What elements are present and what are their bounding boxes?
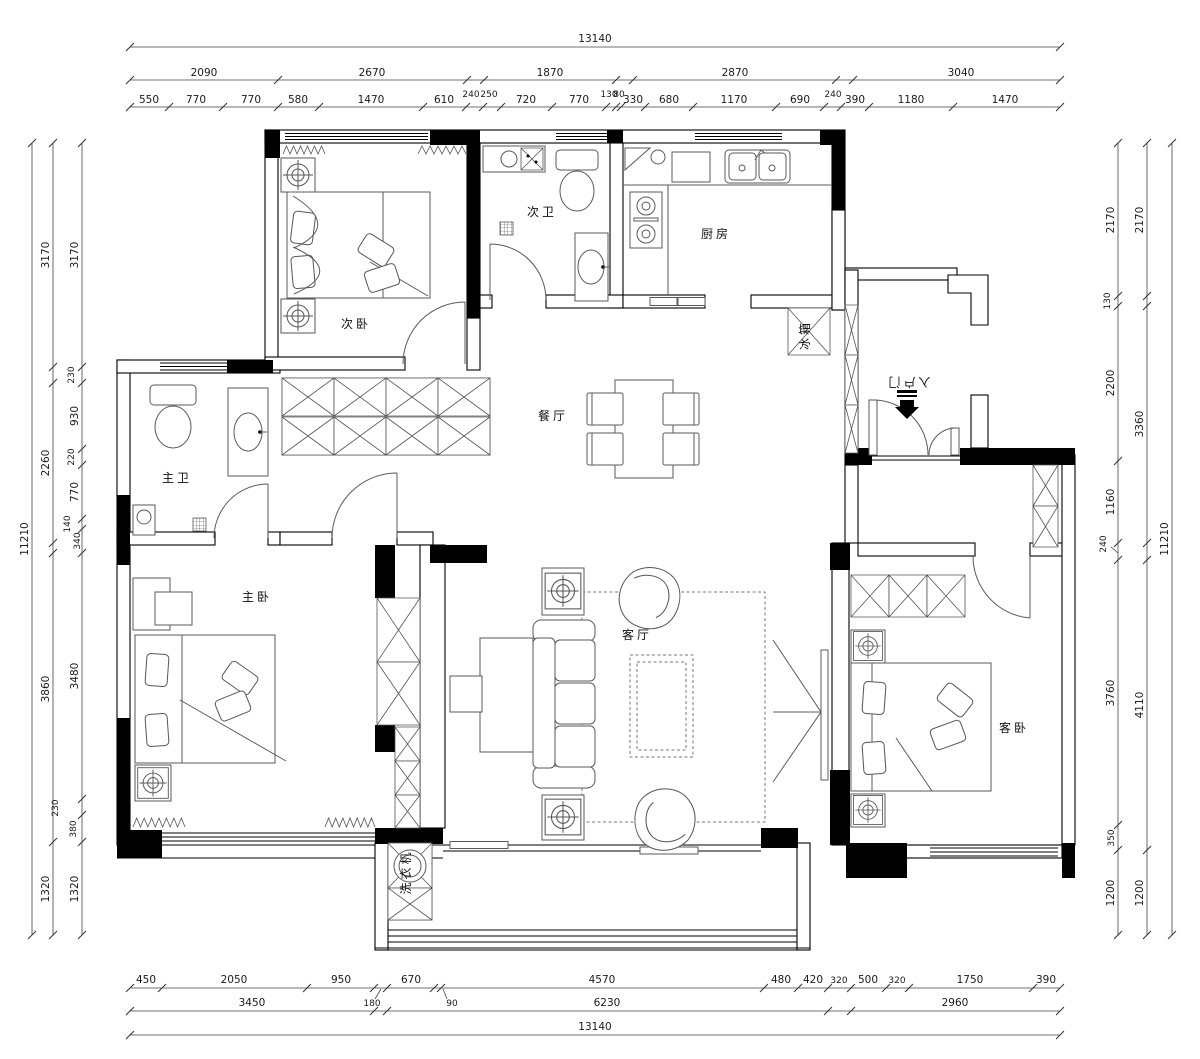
dim-label: 13140 <box>578 33 611 45</box>
dim-label: 550 <box>139 94 159 106</box>
dim-label: 720 <box>516 94 536 106</box>
tv-screen <box>821 650 828 780</box>
dim-label: 140 <box>63 515 73 532</box>
entry-door-leaf <box>869 400 877 455</box>
kitchen-fixtures: 厨房 <box>623 148 832 295</box>
vanity <box>575 233 610 301</box>
dim-label: 2050 <box>221 974 248 986</box>
bath1-fixtures: 主卫 <box>133 385 268 535</box>
dim-label: 330 <box>623 94 643 106</box>
floor-drain <box>193 518 206 531</box>
dim-label: 240 <box>824 90 841 100</box>
bed <box>287 192 430 298</box>
tv-view-lines <box>773 640 821 782</box>
guest-furniture: 客卧 <box>851 630 1029 827</box>
dim-label: 1200 <box>1134 880 1146 907</box>
dim-label: 2170 <box>1134 207 1146 234</box>
sofa <box>533 620 595 788</box>
floor-plan-page: 13140 2090 2670 1870 2870 3040 550 770 7… <box>0 0 1200 1059</box>
dim-label: 2170 <box>1105 207 1117 234</box>
dim-label: 3360 <box>1134 411 1146 438</box>
dim-label: 320 <box>830 976 847 986</box>
dim-label: 1470 <box>992 94 1019 106</box>
nightstand-lamp <box>854 796 883 825</box>
coffee-table <box>630 655 693 757</box>
dim-label: 3170 <box>40 242 52 269</box>
nightstand-lamp <box>281 158 315 192</box>
bedroom2-label: 次卧 <box>341 317 371 331</box>
dim-label: 390 <box>845 94 865 106</box>
door-bedroom2 <box>403 302 465 364</box>
door-bedroom1 <box>332 473 397 538</box>
tv-equipment <box>450 676 482 712</box>
dim-label: 2200 <box>1105 370 1117 397</box>
dining-furniture: 餐厅 <box>538 380 699 478</box>
dim-label: 2960 <box>942 997 969 1009</box>
foyer-cabinet <box>1033 465 1058 506</box>
dim-label: 4110 <box>1134 692 1146 719</box>
table-lamp <box>545 573 581 609</box>
dim-label: 770 <box>186 94 206 106</box>
dim-label: 6230 <box>594 997 621 1009</box>
tv-cabinet <box>480 638 533 752</box>
entry-label: 入户门 <box>885 375 930 390</box>
dim-label: 580 <box>288 94 308 106</box>
master-furniture: 主卧 <box>133 578 286 801</box>
dim-label: 1170 <box>721 94 748 106</box>
dim-label: 240 <box>1099 535 1109 552</box>
dim-label: 930 <box>69 406 81 426</box>
dim-label: 240 <box>462 90 479 100</box>
living-furniture: 客厅 <box>450 564 828 854</box>
dim-label: 3760 <box>1105 680 1117 707</box>
bed <box>851 663 991 791</box>
dim-label: 3480 <box>69 663 81 690</box>
dim-label: 3450 <box>239 997 266 1009</box>
vanity <box>228 388 268 476</box>
dim-label: 130 <box>1103 292 1113 309</box>
toilet <box>556 150 598 211</box>
table-lamp <box>545 799 581 835</box>
nightstand-lamp <box>138 768 169 799</box>
dim-label: 4570 <box>589 974 616 986</box>
dim-label: 180 <box>363 999 380 1009</box>
door-bath1 <box>214 484 268 538</box>
dim-label: 2670 <box>359 67 386 79</box>
living-label: 客厅 <box>622 627 652 642</box>
dim-label: 500 <box>858 974 878 986</box>
floor-drain <box>500 222 513 235</box>
dining-label: 餐厅 <box>538 408 568 423</box>
dim-label: 1470 <box>358 94 385 106</box>
dim-label: 11210 <box>1159 522 1171 555</box>
guest-wardrobe <box>851 575 889 617</box>
master-label: 主卧 <box>242 590 272 604</box>
dim-label: 680 <box>659 94 679 106</box>
nightstand-lamp <box>281 299 315 333</box>
dim-label: 770 <box>569 94 589 106</box>
desk-chair <box>155 592 192 625</box>
dim-label: 1320 <box>69 876 81 903</box>
dim-label: 3170 <box>69 242 81 269</box>
dim-label: 220 <box>67 448 77 465</box>
dim-label: 480 <box>771 974 791 986</box>
dim-label: 2090 <box>191 67 218 79</box>
dim-label: 610 <box>434 94 454 106</box>
dim-label: 230 <box>51 799 61 816</box>
rug <box>582 592 765 822</box>
bath2-fixtures: 次卫 <box>483 146 610 301</box>
dim-label: 1180 <box>898 94 925 106</box>
dim-label: 770 <box>69 482 81 502</box>
bedroom2-furniture: 次卧 <box>281 158 430 333</box>
dim-label: 1870 <box>537 67 564 79</box>
dim-label: 670 <box>401 974 421 986</box>
kitchen-label: 厨房 <box>701 226 731 241</box>
dim-label: 230 <box>67 366 77 383</box>
dim-label: 950 <box>331 974 351 986</box>
dim-label: 3040 <box>948 67 975 79</box>
nightstand-lamp <box>854 632 883 661</box>
dim-label: 2260 <box>40 450 52 477</box>
dim-label: 340 <box>73 532 83 549</box>
dim-label: 1750 <box>957 974 984 986</box>
dim-label: 1160 <box>1105 489 1117 516</box>
bath2-label: 次卫 <box>527 205 557 219</box>
shoe-cabinet <box>845 305 858 355</box>
dim-label: 2870 <box>722 67 749 79</box>
dim-label: 1200 <box>1105 880 1117 907</box>
washer-label: 洗衣机 <box>398 849 413 894</box>
armchair <box>615 564 683 633</box>
master-wardrobe <box>377 598 420 662</box>
door-bath2 <box>490 244 546 300</box>
armchair <box>631 785 699 854</box>
dim-label: 250 <box>480 90 497 100</box>
dim-label: 770 <box>241 94 261 106</box>
floor-plan-drawing: 13140 2090 2670 1870 2870 3040 550 770 7… <box>0 0 1200 1059</box>
dim-label: 350 <box>1107 829 1117 846</box>
dim-label: 3860 <box>40 676 52 703</box>
counter-board <box>672 152 710 182</box>
dim-label: 1320 <box>40 876 52 903</box>
dim-label: 90 <box>446 999 458 1009</box>
dim-label: 390 <box>1036 974 1056 986</box>
dim-label: 690 <box>790 94 810 106</box>
toilet <box>150 385 196 448</box>
dim-label: 380 <box>69 820 79 837</box>
dim-label: 450 <box>136 974 156 986</box>
bath1-label: 主卫 <box>162 471 192 485</box>
dim-label: 420 <box>803 974 823 986</box>
guest-label: 客卧 <box>999 720 1029 735</box>
bed <box>135 635 286 763</box>
dim-label: 320 <box>888 976 905 986</box>
entry-arrow-icon <box>895 400 919 419</box>
balcony: 洗衣机 <box>388 843 432 920</box>
stove <box>630 192 662 248</box>
fridge-label: 冰箱 <box>797 320 812 350</box>
dim-label: 11210 <box>19 522 31 555</box>
door-guest <box>973 556 1030 618</box>
dim-label: 13140 <box>578 1021 611 1033</box>
